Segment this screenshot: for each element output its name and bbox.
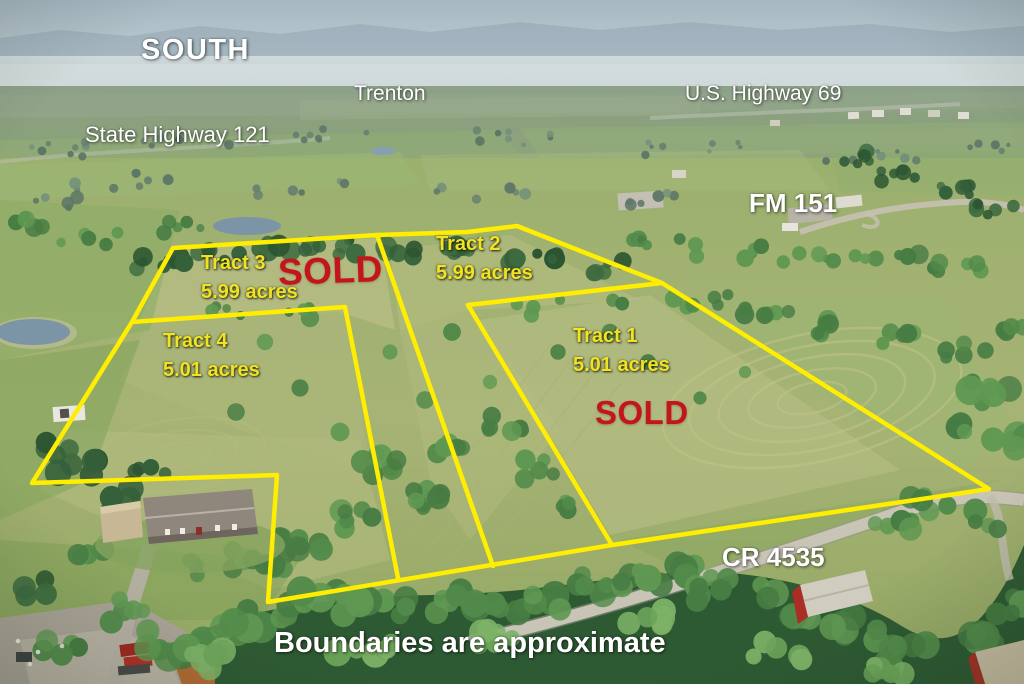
tract-3-acreage: 5.99 acres bbox=[201, 278, 298, 307]
aerial-photo: SOUTH Trenton U.S. Highway 69 State High… bbox=[0, 0, 1024, 684]
tract-4-label: Tract 4 5.01 acres bbox=[163, 327, 260, 385]
tract-4-acreage: 5.01 acres bbox=[163, 356, 260, 385]
tract-1-label: Tract 1 5.01 acres bbox=[573, 322, 670, 380]
vignette bbox=[0, 0, 1024, 684]
tract-2-label: Tract 2 5.99 acres bbox=[436, 230, 533, 288]
tract-3-name: Tract 3 bbox=[201, 249, 298, 278]
tract-1-acreage: 5.01 acres bbox=[573, 351, 670, 380]
tract-2-name: Tract 2 bbox=[436, 230, 533, 259]
tract-4-name: Tract 4 bbox=[163, 327, 260, 356]
tract-1-name: Tract 1 bbox=[573, 322, 670, 351]
tract-2-acreage: 5.99 acres bbox=[436, 259, 533, 288]
aerial-scene bbox=[0, 0, 1024, 684]
tract-3-label: Tract 3 5.99 acres bbox=[201, 249, 298, 307]
